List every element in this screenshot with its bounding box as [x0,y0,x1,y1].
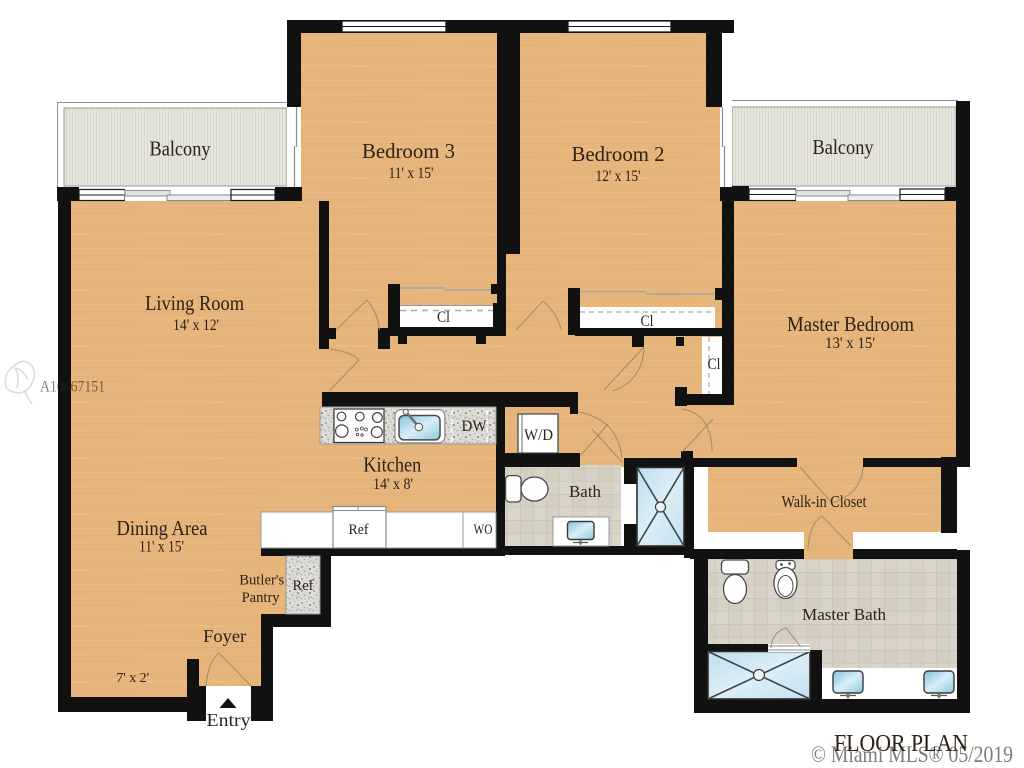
svg-text:Cl: Cl [708,356,721,373]
svg-text:14' x 12': 14' x 12' [173,317,219,334]
svg-text:Ref: Ref [349,522,369,538]
svg-text:Butler's: Butler's [239,573,284,589]
svg-text:Pantry: Pantry [242,590,280,606]
svg-text:Bath: Bath [569,482,601,501]
svg-text:W/D: W/D [524,427,553,444]
svg-text:13' x 15': 13' x 15' [825,335,875,352]
svg-text:Walk-in Closet: Walk-in Closet [782,492,867,511]
svg-text:Master Bath: Master Bath [802,605,886,624]
svg-text:© Miami MLS® 05/2019: © Miami MLS® 05/2019 [811,742,1013,767]
svg-text:Dining Area: Dining Area [117,516,209,540]
svg-text:12' x 15': 12' x 15' [596,168,641,185]
svg-text:Kitchen: Kitchen [363,453,421,477]
svg-text:Balcony: Balcony [813,135,874,159]
svg-text:DW: DW [462,418,488,435]
svg-text:11' x 15': 11' x 15' [389,165,434,182]
svg-text:Cl: Cl [641,313,654,330]
svg-text:Bedroom 2: Bedroom 2 [572,142,665,166]
svg-text:11' x 15': 11' x 15' [139,539,184,556]
svg-text:Master Bedroom: Master Bedroom [787,312,914,336]
svg-text:Cl: Cl [437,309,450,326]
svg-text:WO: WO [474,522,493,538]
svg-text:Entry: Entry [207,710,251,730]
svg-text:Bedroom 3: Bedroom 3 [362,139,455,163]
svg-text:Living Room: Living Room [145,291,244,315]
svg-text:Ref: Ref [293,578,314,594]
svg-text:Foyer: Foyer [203,626,246,646]
svg-text:14' x 8': 14' x 8' [373,476,413,493]
svg-text:7' x 2': 7' x 2' [116,671,149,686]
svg-text:A10667151: A10667151 [40,379,105,396]
svg-text:Balcony: Balcony [150,136,211,160]
